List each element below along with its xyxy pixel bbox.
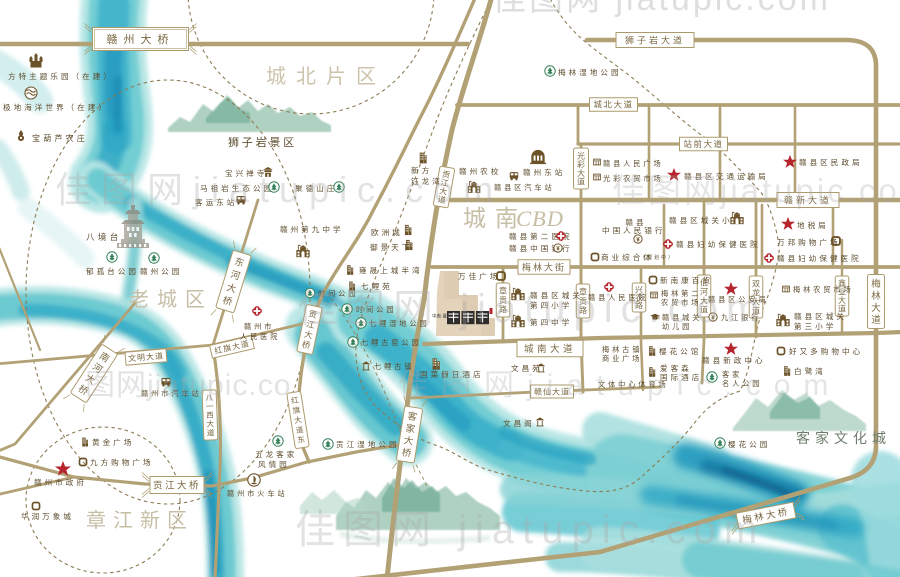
- svg-text:新南康百货: 新南康百货: [660, 275, 713, 285]
- svg-text:华润万象城: 华润万象城: [21, 511, 74, 521]
- svg-text:五龙客家: 五龙客家: [255, 449, 297, 459]
- svg-text:极地海洋世界（在建）: 极地海洋世界（在建）: [3, 102, 109, 112]
- svg-text:第三小学: 第三小学: [794, 321, 836, 331]
- svg-text:赣州第九中学: 赣州第九中学: [280, 224, 344, 234]
- svg-text:梅林农贸市场: 梅林农贸市场: [793, 285, 854, 294]
- svg-text:赣县人民广场: 赣县人民广场: [603, 159, 664, 168]
- svg-text:站前大道: 站前大道: [683, 139, 723, 149]
- svg-text:赣县区汽车站: 赣县区汽车站: [494, 183, 555, 192]
- svg-text:客家文化城: 客家文化城: [796, 430, 891, 446]
- svg-text:万邦购物广场: 万邦购物广场: [777, 237, 841, 247]
- svg-text:地税局: 地税局: [797, 220, 829, 230]
- svg-text:老城区: 老城区: [129, 288, 213, 311]
- svg-text:文昌阁: 文昌阁: [503, 418, 535, 428]
- svg-text:佳图网jiatupic.com: 佳图网jiatupic.com: [55, 169, 503, 210]
- svg-text:梅林大街: 梅林大街: [522, 261, 566, 272]
- svg-text:梅林古镇: 梅林古镇: [602, 345, 642, 354]
- svg-text:赣县中国银行: 赣县中国银行: [509, 243, 573, 253]
- svg-text:光彩大道: 光彩大道: [577, 150, 585, 186]
- svg-text:赣州东站: 赣州东站: [523, 167, 565, 177]
- svg-text:樱花公馆: 樱花公馆: [659, 346, 701, 356]
- svg-text:赣州市政府: 赣州市政府: [34, 477, 87, 487]
- svg-text:佳图网 jiatupic.com: 佳图网 jiatupic.com: [297, 287, 767, 331]
- svg-text:CBD: CBD: [516, 206, 564, 231]
- svg-text:好又多购物中心: 好又多购物中心: [789, 346, 863, 356]
- svg-text:贡江湿地公园: 贡江湿地公园: [336, 439, 400, 449]
- svg-text:赣县区民政局: 赣县区民政局: [799, 157, 863, 167]
- svg-text:狮子岩景区: 狮子岩景区: [228, 135, 297, 149]
- svg-text:黄金广场: 黄金广场: [92, 437, 134, 447]
- svg-text:郁孤台公园: 郁孤台公园: [86, 266, 139, 276]
- svg-text:七鲤古窑公园: 七鲤古窑公园: [361, 338, 422, 347]
- svg-text:城北大道: 城北大道: [593, 100, 633, 110]
- svg-text:城南大道: 城南大道: [524, 343, 576, 355]
- svg-text:万佳广场: 万佳广场: [458, 271, 500, 281]
- svg-text:雍晟上城半湾: 雍晟上城半湾: [359, 265, 423, 275]
- svg-text:狮子岩大道: 狮子岩大道: [625, 34, 685, 45]
- svg-text:图网jiatupic.co: 图网jiatupic.co: [85, 369, 291, 402]
- svg-text:九方购物广场: 九方购物广场: [90, 457, 154, 467]
- svg-text:梅林大道: 梅林大道: [871, 278, 881, 326]
- svg-text:佳图网 jiatupic.com: 佳图网 jiatupic.com: [492, 0, 831, 18]
- svg-text:人民医院: 人民医院: [240, 332, 280, 341]
- svg-text:赣州市火车站: 赣州市火车站: [227, 489, 288, 498]
- svg-text:城北片区: 城北片区: [266, 65, 386, 88]
- svg-text:章江新区: 章江新区: [86, 509, 194, 532]
- svg-text:樱花公园: 樱花公园: [728, 439, 770, 449]
- svg-text:赣县新政中心: 赣县新政中心: [702, 355, 766, 365]
- svg-text:赣县区城关: 赣县区城关: [794, 311, 847, 321]
- svg-text:赣县妇幼保健医院: 赣县妇幼保健医院: [676, 239, 761, 249]
- svg-text:赣州市: 赣州市: [244, 322, 274, 331]
- svg-text:商业广场: 商业广场: [602, 354, 642, 363]
- svg-text:御景天下: 御景天下: [370, 242, 412, 252]
- svg-text:佳图网 jiatupic.com: 佳图网 jiatupic.com: [295, 508, 765, 552]
- svg-text:宝葫芦农庄: 宝葫芦农庄: [32, 133, 88, 143]
- svg-text:佳图网jiatupic.com: 佳图网jiatupic.com: [612, 172, 900, 209]
- svg-text:中国人民银行: 中国人民银行: [602, 225, 666, 235]
- svg-text:欧洲城: 欧洲城: [371, 227, 403, 237]
- svg-text:贡江大桥: 贡江大桥: [153, 479, 201, 491]
- svg-text:（规划中）: （规划中）: [640, 254, 675, 261]
- svg-text:方特主题乐园（在建）: 方特主题乐园（在建）: [8, 71, 114, 81]
- svg-text:鑫业大道: 鑫业大道: [838, 278, 846, 314]
- svg-text:梅林湿地公园: 梅林湿地公园: [558, 67, 622, 77]
- svg-text:风情园: 风情园: [258, 459, 290, 469]
- svg-text:佳图网jiatupic.com: 佳图网jiatupic.com: [398, 369, 841, 402]
- svg-text:八境台: 八境台: [86, 232, 122, 242]
- svg-text:赣县妇幼保健医院: 赣县妇幼保健医院: [777, 253, 862, 263]
- svg-text:赣州大桥: 赣州大桥: [107, 32, 175, 46]
- svg-text:赣州公园: 赣州公园: [140, 266, 182, 276]
